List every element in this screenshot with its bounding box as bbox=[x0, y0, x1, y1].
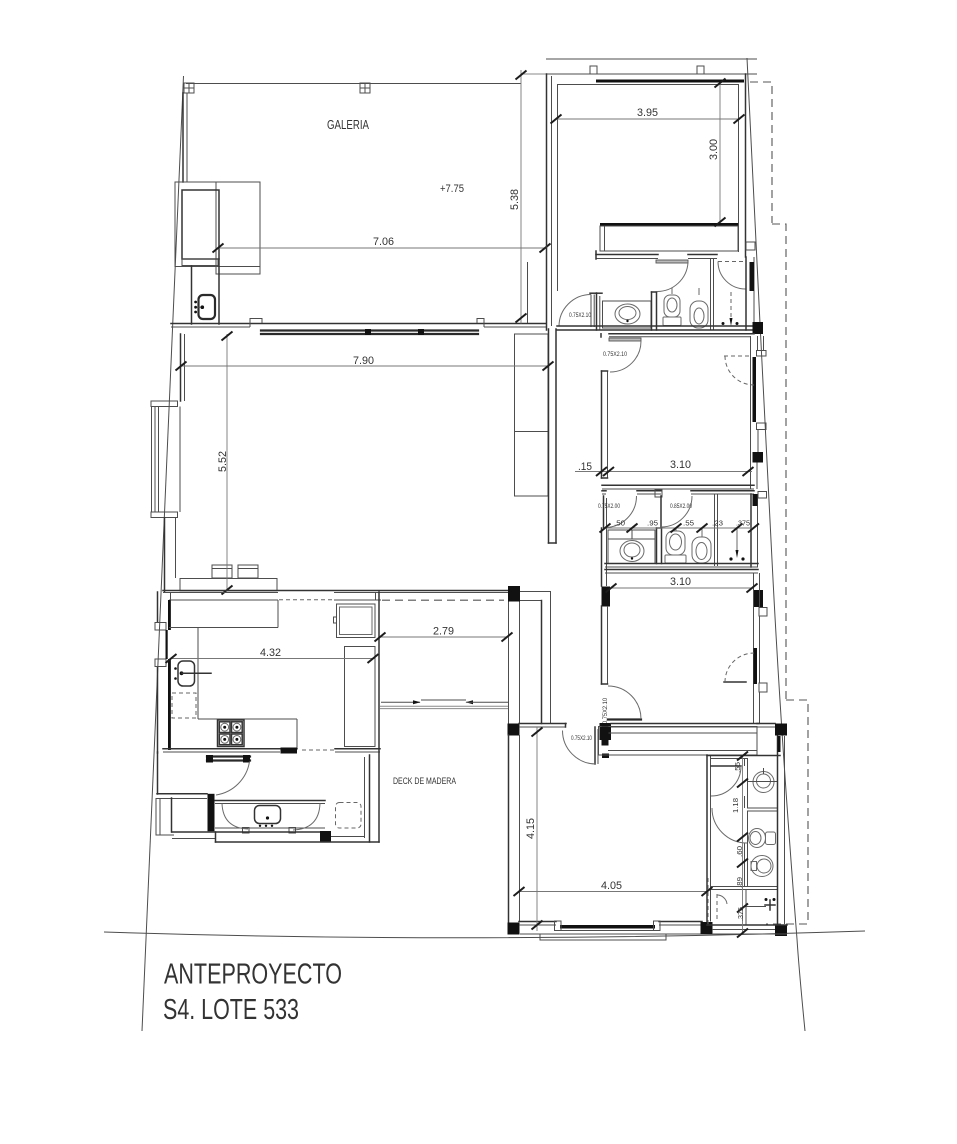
svg-text:4.05: 4.05 bbox=[601, 880, 622, 892]
svg-text:.55: .55 bbox=[735, 762, 742, 773]
svg-text:.89: .89 bbox=[737, 877, 744, 888]
svg-text:.95: .95 bbox=[647, 521, 658, 528]
svg-text:0.75X2.10: 0.75X2.10 bbox=[569, 313, 592, 319]
svg-text:1.18: 1.18 bbox=[733, 798, 740, 813]
svg-text:0.75X2.10: 0.75X2.10 bbox=[603, 697, 609, 724]
svg-text:GALERIA: GALERIA bbox=[327, 118, 370, 132]
svg-text:.50: .50 bbox=[614, 521, 625, 528]
svg-text:2.79: 2.79 bbox=[433, 626, 454, 638]
svg-text:0.75X2.00: 0.75X2.00 bbox=[598, 504, 621, 510]
svg-text:5.52: 5.52 bbox=[217, 451, 229, 472]
svg-text:.55: .55 bbox=[683, 521, 694, 528]
svg-text:ANTEPROYECTO: ANTEPROYECTO bbox=[164, 959, 342, 991]
svg-text:7.06: 7.06 bbox=[373, 236, 394, 248]
svg-text:.375: .375 bbox=[736, 521, 750, 528]
svg-text:+7.75: +7.75 bbox=[440, 183, 464, 195]
svg-text:3.95: 3.95 bbox=[637, 107, 658, 119]
svg-text:.375: .375 bbox=[738, 907, 745, 921]
svg-text:4.32: 4.32 bbox=[260, 647, 281, 659]
svg-text:0.75X2.10: 0.75X2.10 bbox=[603, 352, 628, 358]
svg-text:3.10: 3.10 bbox=[670, 459, 691, 471]
svg-text:.15: .15 bbox=[578, 461, 592, 473]
svg-text:0.85X2.00: 0.85X2.00 bbox=[670, 504, 693, 510]
svg-text:0.75X2.10: 0.75X2.10 bbox=[571, 736, 593, 742]
svg-text:4.15: 4.15 bbox=[525, 818, 537, 839]
svg-text:.23: .23 bbox=[712, 521, 723, 528]
svg-text:DECK DE MADERA: DECK DE MADERA bbox=[393, 776, 456, 787]
svg-text:3.10: 3.10 bbox=[670, 576, 691, 588]
svg-text:7.90: 7.90 bbox=[353, 355, 374, 367]
svg-text:5.38: 5.38 bbox=[509, 189, 521, 210]
svg-text:3.00: 3.00 bbox=[708, 139, 720, 160]
svg-text:.60: .60 bbox=[737, 846, 744, 857]
svg-text:S4. LOTE 533: S4. LOTE 533 bbox=[163, 994, 299, 1026]
